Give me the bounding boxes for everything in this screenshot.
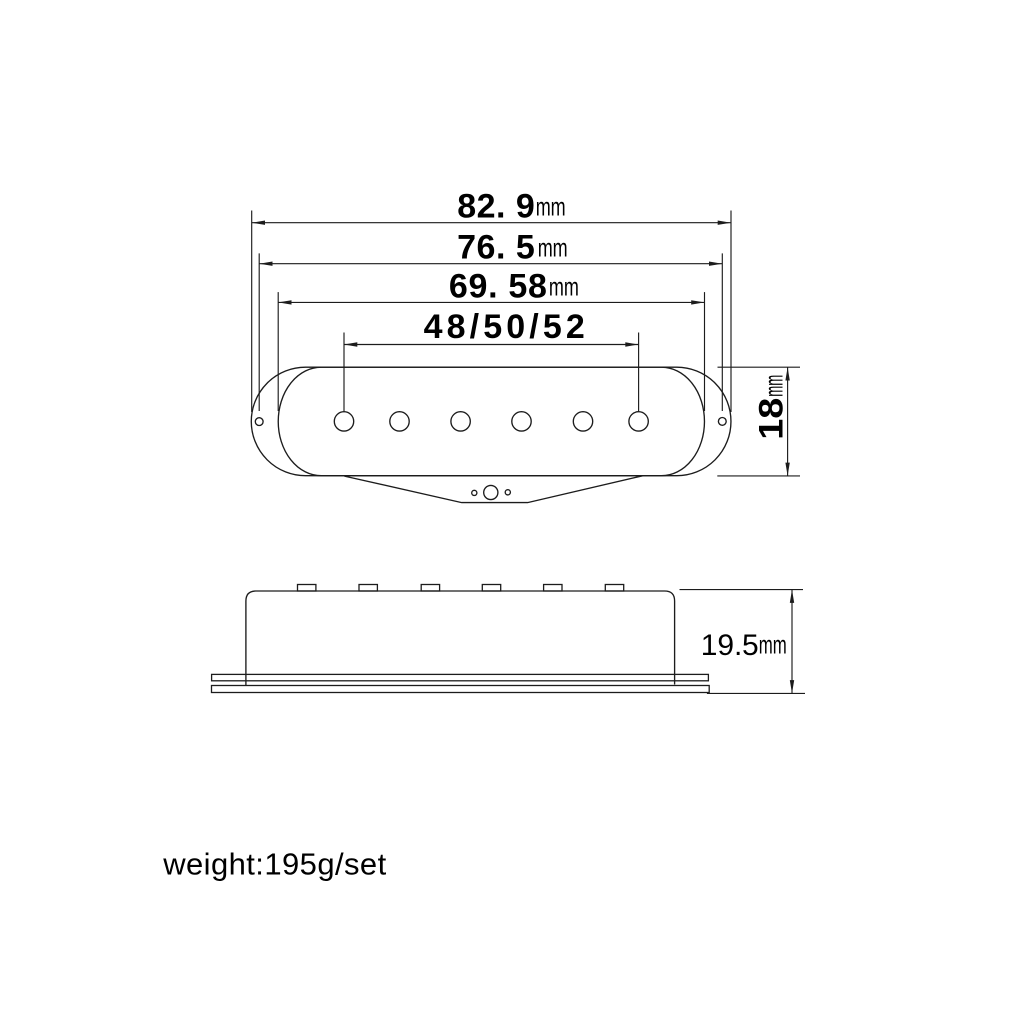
svg-text:5: 5 [742, 629, 759, 662]
svg-text:mm: mm [549, 272, 579, 302]
svg-text:mm: mm [759, 375, 789, 397]
svg-text:82. 9: 82. 9 [457, 187, 535, 225]
svg-text:76. 5: 76. 5 [457, 229, 535, 267]
svg-text:weight:195g/set: weight:195g/set [162, 847, 386, 882]
svg-text:18: 18 [753, 398, 791, 440]
svg-text:mm: mm [536, 192, 566, 222]
svg-text:mm: mm [538, 233, 568, 263]
svg-text:mm: mm [759, 630, 787, 660]
svg-text:19.: 19. [701, 629, 743, 662]
svg-text:69. 58: 69. 58 [449, 267, 547, 305]
